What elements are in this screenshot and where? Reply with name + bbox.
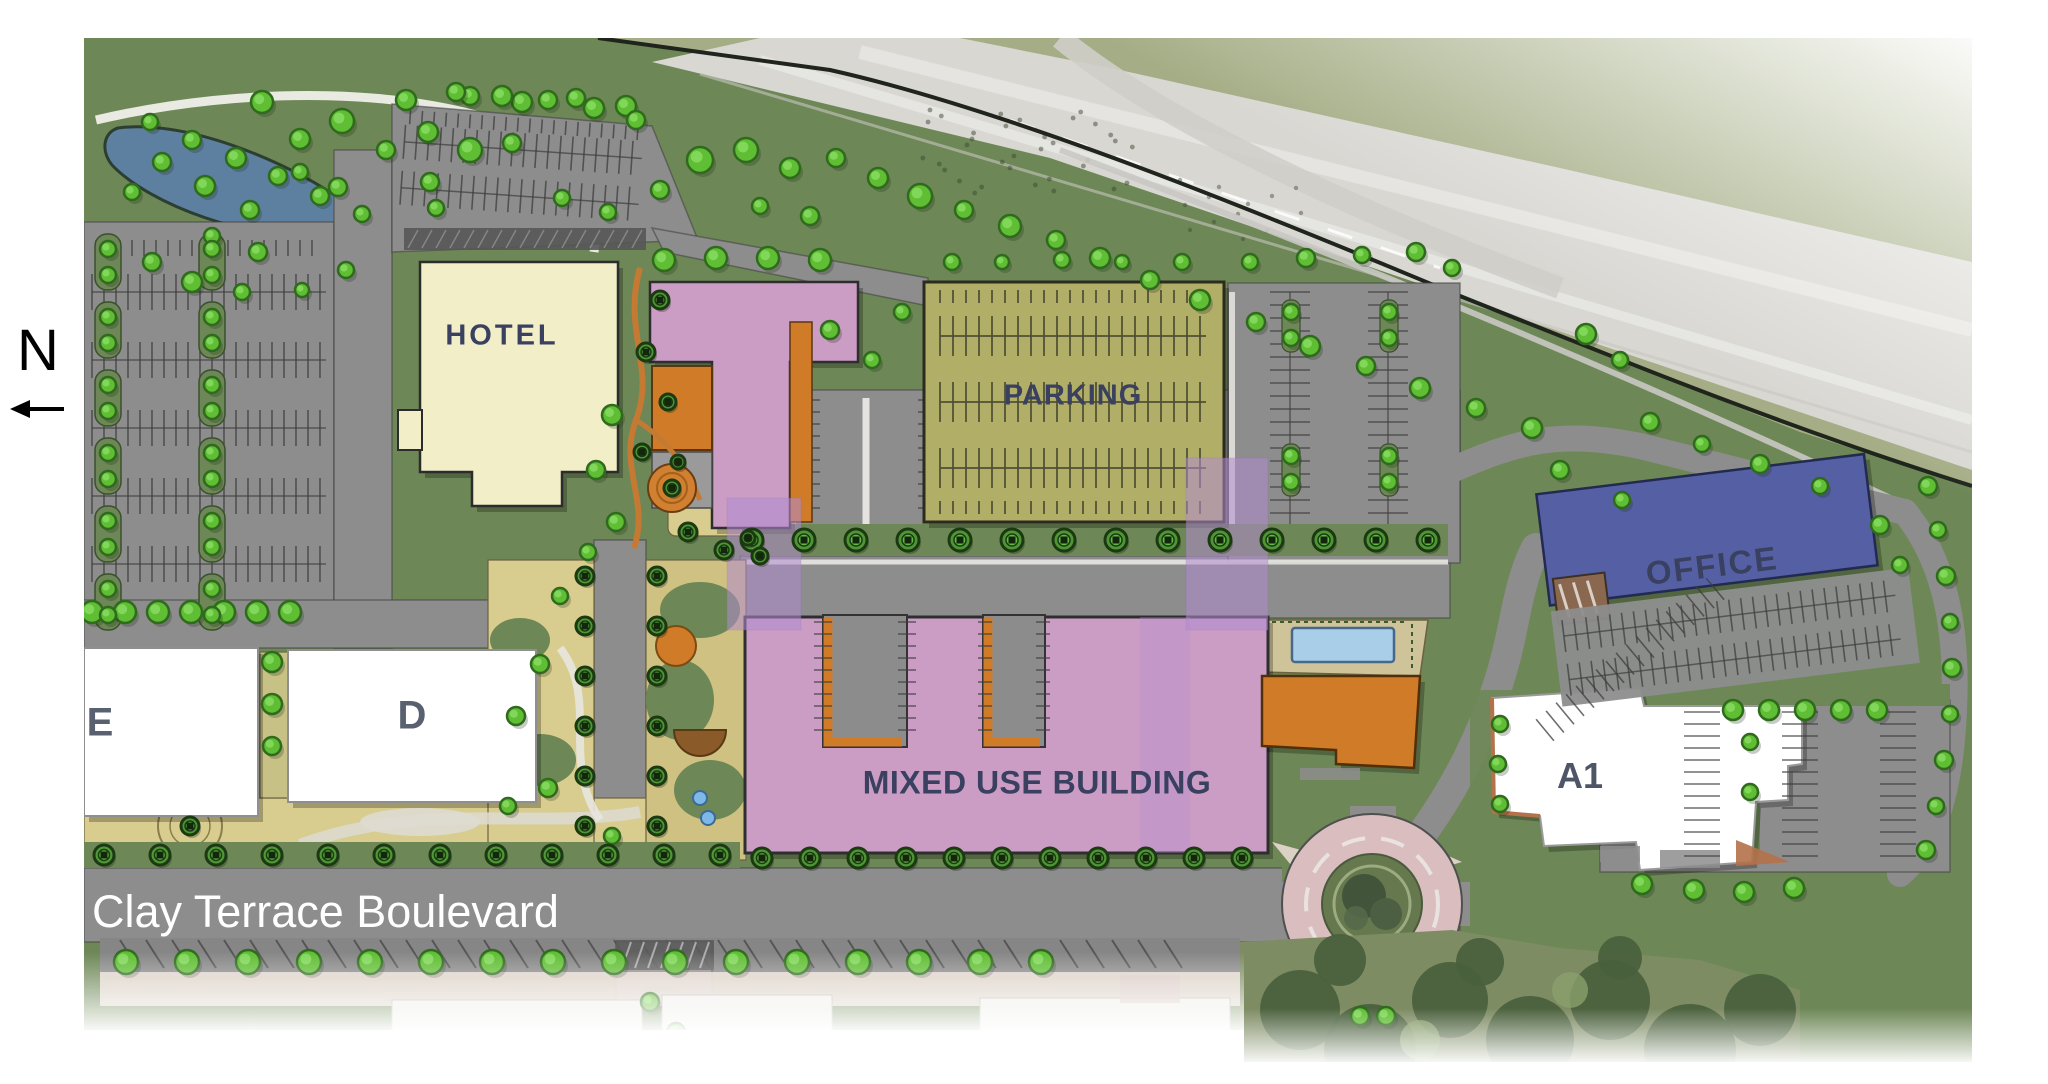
- building-d-label: D: [398, 694, 427, 739]
- mixed-use-label: MIXED USE BUILDING: [863, 765, 1212, 802]
- hotel-label: HOTEL: [445, 320, 558, 353]
- north-label: N: [6, 322, 70, 380]
- street-name-label: Clay Terrace Boulevard: [92, 886, 559, 938]
- site-plan-page: N HOTEL PARKING OFFICE MIXED USE BUILDIN…: [0, 0, 2048, 1084]
- north-indicator: N: [6, 322, 70, 420]
- building-a1-label: A1: [1557, 755, 1603, 797]
- building-e-label: E: [87, 701, 114, 746]
- north-arrow-icon: [10, 398, 66, 420]
- parking-garage-label: PARKING: [1004, 380, 1143, 413]
